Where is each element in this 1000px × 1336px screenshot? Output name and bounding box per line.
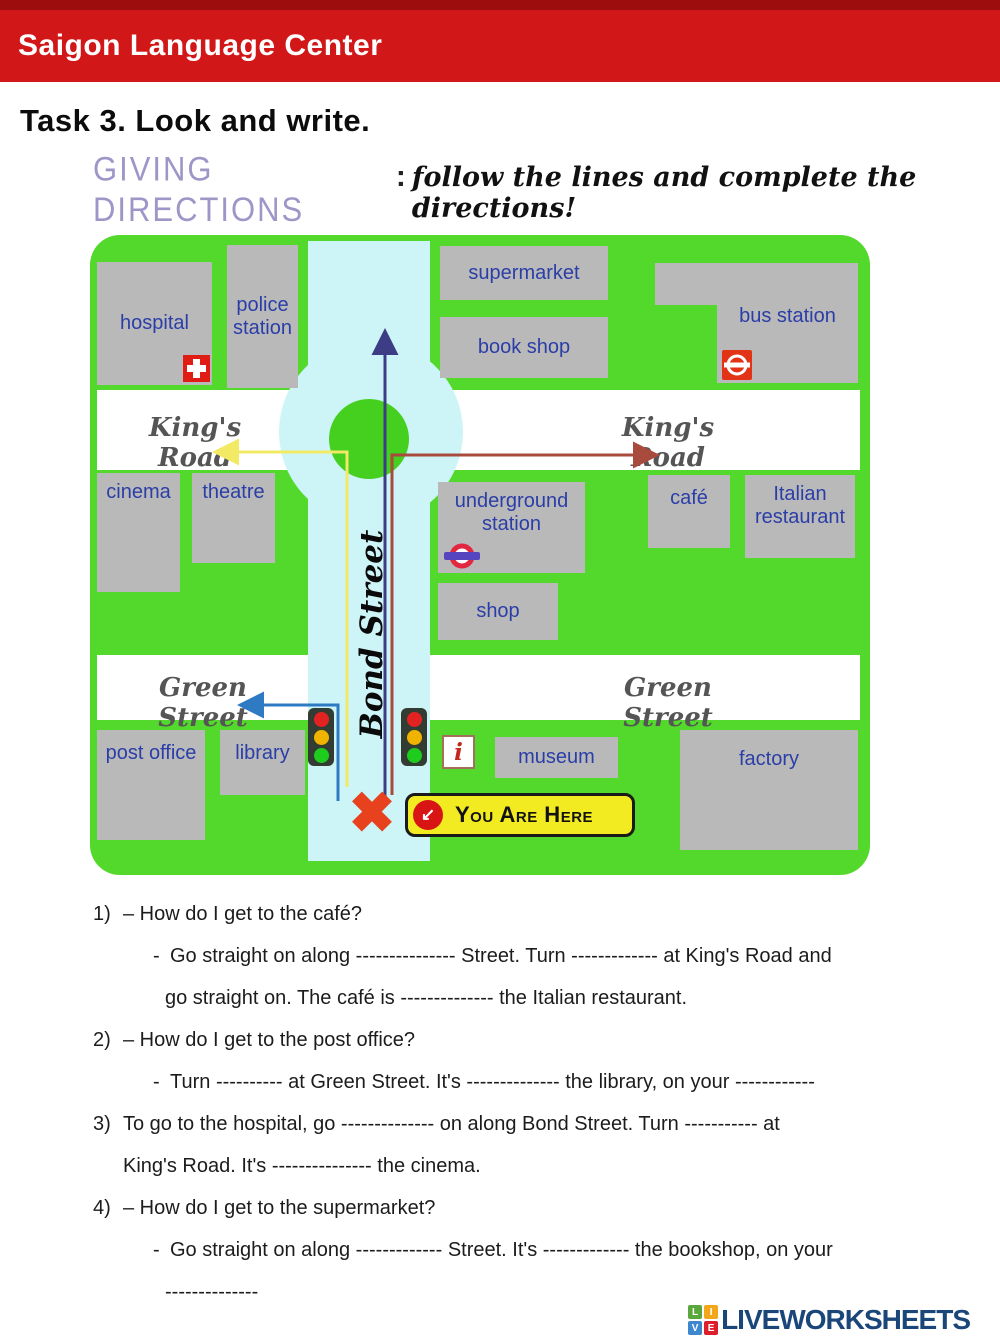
traffic-light-icon-left [308, 708, 334, 766]
building-supermarket: supermarket [440, 246, 608, 300]
building-police-station-label: police station [227, 294, 298, 340]
kings-road-label-right: King's Road [583, 413, 753, 473]
answer-2-line: -Turn ---------- at Green Street. It's -… [0, 1061, 1000, 1103]
answer-2-text: Turn ---------- at Green Street. It's --… [170, 1071, 815, 1093]
worksheet-intro: GIVING DIRECTIONS : follow the lines and… [93, 158, 1000, 230]
building-italian-restaurant: Italian restaurant [745, 475, 855, 558]
question-2-number: 2) [93, 1019, 123, 1061]
task-title: Task 3. Look and write. [20, 103, 370, 139]
answer-1-text-2: go straight on. The café is ------------… [165, 987, 687, 1009]
answer-1-dash: - [153, 935, 170, 977]
question-4-line: 4)– How do I get to the supermarket? [0, 1187, 1000, 1229]
building-cafe: café [648, 475, 730, 548]
x-marker-icon: ✖ [340, 781, 404, 845]
info-icon: i [442, 735, 475, 769]
question-3-line-2: King's Road. It's --------------- the ci… [0, 1145, 1000, 1187]
building-book-shop-label: book shop [478, 336, 570, 359]
answer-4-dash: - [153, 1229, 170, 1271]
answer-1-line-2: go straight on. The café is ------------… [0, 977, 1000, 1019]
building-cafe-label: café [670, 475, 708, 510]
building-hospital-label: hospital [120, 312, 189, 335]
school-name: Saigon Language Center [18, 10, 382, 82]
building-factory: factory [680, 730, 858, 850]
header-top-strip [0, 0, 1000, 10]
bus-roundel-icon [722, 350, 752, 380]
intro-colon: : [396, 160, 406, 194]
building-cinema-label: cinema [106, 473, 170, 504]
building-underground-station: underground station [438, 482, 585, 573]
question-1-line: 1)– How do I get to the café? [0, 893, 1000, 935]
answer-4-text-1: Go straight on along ------------- Stree… [170, 1239, 833, 1261]
question-2-text: – How do I get to the post office? [123, 1029, 415, 1051]
liveworksheets-brand-text: LIVEWORKSHEETS [721, 1304, 970, 1336]
building-shop-label: shop [476, 600, 519, 623]
logo-cell-i: I [704, 1305, 718, 1319]
building-bus-station-label: bus station [739, 263, 836, 328]
building-museum: museum [495, 737, 618, 778]
question-3-line-1: 3)To go to the hospital, go ------------… [0, 1103, 1000, 1145]
building-theatre-label: theatre [202, 473, 264, 504]
building-underground-station-label: underground station [438, 482, 585, 536]
green-street-label-right: Green Street [583, 673, 753, 733]
you-are-here-arrow-icon: ↙ [413, 800, 443, 830]
building-post-office: post office [97, 730, 205, 840]
intro-script: follow the lines and complete the direct… [412, 162, 1000, 224]
building-library-label: library [235, 730, 289, 765]
green-street-label-left: Green Street [118, 673, 288, 733]
question-4-number: 4) [93, 1187, 123, 1229]
question-3-text-1: To go to the hospital, go --------------… [123, 1113, 780, 1135]
building-italian-restaurant-label: Italian restaurant [745, 475, 855, 529]
building-shop: shop [438, 583, 558, 640]
you-are-here-banner: ↙ You Are Here [405, 793, 635, 837]
question-4-text: – How do I get to the supermarket? [123, 1197, 435, 1219]
building-hospital: hospital [97, 262, 212, 385]
answer-4-text-2: -------------- [165, 1281, 258, 1303]
building-police-station: police station [227, 245, 298, 388]
building-museum-label: museum [518, 746, 595, 769]
question-1-text: – How do I get to the café? [123, 903, 362, 925]
question-1-number: 1) [93, 893, 123, 935]
bond-street-label: Bond Street [354, 529, 396, 739]
answer-1-line-1: -Go straight on along --------------- St… [0, 935, 1000, 977]
answer-1-text-1: Go straight on along --------------- Str… [170, 945, 832, 967]
question-3-number: 3) [93, 1103, 123, 1145]
question-3-text-2: King's Road. It's --------------- the ci… [123, 1155, 481, 1177]
roundabout-island [329, 399, 409, 479]
building-cinema: cinema [97, 473, 180, 592]
building-supermarket-label: supermarket [468, 262, 579, 285]
liveworksheets-logo: L I V E LIVEWORKSHEETS [688, 1304, 970, 1336]
underground-roundel-icon [444, 541, 480, 571]
liveworksheets-icon: L I V E [688, 1305, 718, 1335]
traffic-light-icon-right [401, 708, 427, 766]
building-library: library [220, 730, 305, 795]
logo-cell-l: L [688, 1305, 702, 1319]
hospital-cross-icon [183, 355, 210, 382]
building-book-shop: book shop [440, 317, 608, 378]
intro-heading: GIVING DIRECTIONS [93, 149, 390, 230]
building-post-office-label: post office [106, 730, 197, 765]
you-are-here-label: You Are Here [455, 802, 593, 828]
building-factory-label: factory [739, 730, 799, 771]
answer-2-dash: - [153, 1061, 170, 1103]
answer-4-line-1: -Go straight on along ------------- Stre… [0, 1229, 1000, 1271]
kings-road-label-left: King's Road [110, 413, 280, 473]
questions-section: 1)– How do I get to the café? -Go straig… [0, 893, 1000, 1313]
building-theatre: theatre [192, 473, 275, 563]
directions-map: hospital police station supermarket book… [90, 235, 870, 875]
question-2-line: 2)– How do I get to the post office? [0, 1019, 1000, 1061]
